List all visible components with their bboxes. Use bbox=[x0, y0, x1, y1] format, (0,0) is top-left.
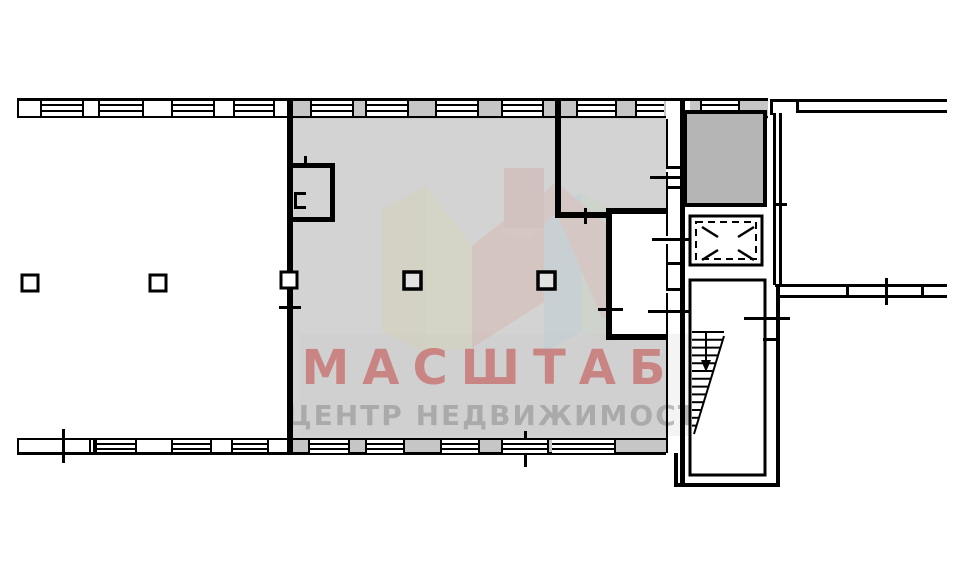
wall-junction-tick bbox=[776, 203, 787, 206]
wall-junction-tick bbox=[666, 262, 685, 265]
staircase-icon bbox=[690, 280, 765, 475]
left-bottom-wall-endcap bbox=[17, 438, 19, 455]
core-bottom-wall bbox=[674, 483, 780, 487]
partition-wall bbox=[555, 98, 561, 218]
right-top-wall-inner bbox=[798, 110, 947, 113]
right-top-wall-outer bbox=[770, 99, 947, 102]
right-left-wall-inner bbox=[779, 113, 782, 285]
left-top-wall-endcap bbox=[17, 98, 19, 118]
window bbox=[635, 101, 664, 116]
partition-wall bbox=[555, 212, 612, 218]
window bbox=[365, 440, 405, 453]
window bbox=[501, 440, 549, 453]
column bbox=[150, 275, 166, 291]
floor-plan-page: МАСШТАБ ЦЕНТР НЕДВИЖИМОСТИ bbox=[0, 0, 976, 582]
window bbox=[365, 101, 409, 116]
white-room-top-wall bbox=[606, 208, 666, 214]
wall-divider bbox=[93, 440, 95, 453]
white-room bbox=[598, 208, 666, 340]
watermark-title: МАСШТАБ bbox=[302, 340, 679, 396]
wall-junction-tick bbox=[885, 278, 888, 305]
left-top-wall-outer bbox=[17, 98, 287, 101]
window bbox=[440, 440, 480, 453]
wall-junction-tick bbox=[846, 284, 849, 298]
window bbox=[435, 101, 479, 116]
window bbox=[310, 101, 354, 116]
core-outer-wall bbox=[674, 453, 678, 487]
wall-junction-tick bbox=[304, 156, 307, 168]
logo-red-block bbox=[504, 168, 544, 228]
window bbox=[308, 440, 350, 453]
column bbox=[404, 272, 421, 289]
wall-junction-tick bbox=[921, 284, 924, 298]
window bbox=[552, 440, 616, 453]
floor-plan-image: МАСШТАБ ЦЕНТР НЕДВИЖИМОСТИ bbox=[0, 0, 976, 582]
left-bottom-wall-inner bbox=[17, 438, 287, 440]
elevator-shaft-icon bbox=[690, 216, 762, 265]
right-wall-connector bbox=[770, 99, 773, 115]
core-left-wall-thin bbox=[666, 244, 668, 288]
white-room-bottom-wall bbox=[606, 334, 666, 340]
wall-junction-tick bbox=[584, 208, 587, 224]
core-left-wall-thin bbox=[666, 172, 668, 236]
unit-bottom-wall-inner bbox=[287, 438, 666, 440]
core-right-wall bbox=[776, 287, 780, 483]
left-bottom-wall-outer bbox=[17, 452, 288, 455]
watermark-subtitle: ЦЕНТР НЕДВИЖИМОСТИ bbox=[286, 399, 725, 432]
wall-divider bbox=[89, 440, 91, 453]
window bbox=[576, 101, 617, 116]
wall-junction-tick bbox=[744, 317, 790, 320]
column bbox=[22, 275, 38, 291]
white-room-floor bbox=[612, 214, 666, 334]
column bbox=[281, 272, 297, 288]
wall-junction-tick bbox=[763, 338, 780, 341]
logo-left-bar bbox=[382, 186, 426, 352]
window bbox=[501, 101, 544, 116]
wall-junction-tick bbox=[62, 429, 65, 463]
core-left-wall-thin bbox=[666, 293, 668, 453]
core-left-wall-thin bbox=[666, 119, 668, 167]
right-left-wall-outer bbox=[773, 113, 776, 285]
column bbox=[538, 272, 555, 289]
wall-junction-tick bbox=[666, 288, 685, 291]
unit-top-wall-outer bbox=[287, 98, 768, 101]
wall-junction-tick bbox=[666, 166, 685, 169]
dark-room bbox=[685, 112, 765, 205]
left-top-wall-inner bbox=[17, 116, 288, 118]
wall-junction-tick bbox=[666, 186, 685, 189]
wall-junction-tick bbox=[279, 306, 301, 309]
white-room-left-wall bbox=[606, 208, 612, 340]
wall-junction-tick bbox=[598, 308, 623, 311]
unit-top-wall-inner bbox=[287, 116, 666, 118]
